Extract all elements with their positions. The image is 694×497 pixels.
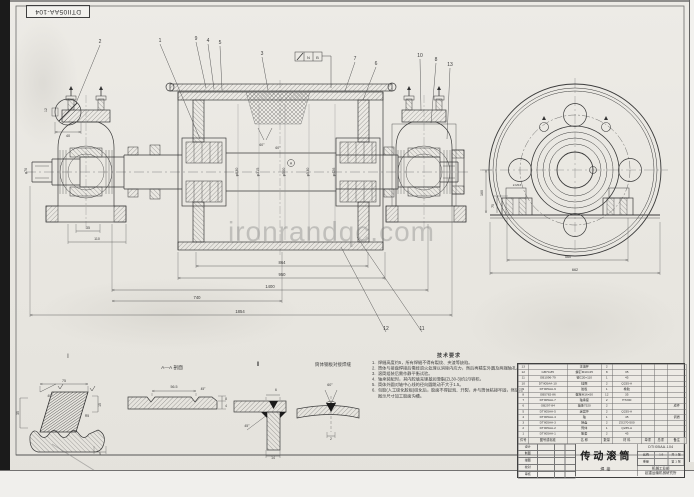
end-view xyxy=(482,78,668,256)
dimension-label: 60° xyxy=(327,383,333,387)
detail-views xyxy=(30,384,359,452)
balloon-leader xyxy=(196,42,206,88)
signature-cell xyxy=(537,471,554,478)
dimension-label: φ315 xyxy=(256,168,260,177)
info-cell: 比例 xyxy=(638,451,655,458)
view-label: 筒体钢板对接焊缝 xyxy=(315,361,351,368)
dimension-label: N xyxy=(307,55,310,60)
signature-cell xyxy=(555,465,565,472)
dimension-label: 35 xyxy=(16,411,20,415)
balloon-leader xyxy=(420,59,421,111)
signature-cell xyxy=(555,458,565,465)
dimension-label: 8 xyxy=(225,397,227,401)
balloon-number: 3 xyxy=(261,51,264,57)
balloon-leader xyxy=(76,45,100,103)
balloon-leader xyxy=(341,247,386,332)
dimension-label: φ70 xyxy=(24,168,28,174)
signature-grid: 设计制图描图校对审核 xyxy=(518,444,576,476)
dimension-label: 60° xyxy=(275,146,281,150)
drawing-number-stamp: DTII05AA-104 xyxy=(26,5,90,18)
dimension-label: 14 xyxy=(271,456,275,460)
balloon-leader xyxy=(447,68,450,139)
balloon-number: 2 xyxy=(99,39,102,45)
dimension-label: 864 xyxy=(279,260,287,265)
dimension-label: 950 xyxy=(279,272,287,277)
notes-list: 1.焊缝高度约5，所有焊缝不得有裂纹、夹渣等缺陷。2.筒体与接盘焊接后需经退火处… xyxy=(372,360,526,399)
dimension-label: B xyxy=(316,55,319,60)
dimension-label: 40° xyxy=(47,394,53,398)
dimension-label: 5 xyxy=(99,452,101,456)
dimension-label: 560 xyxy=(565,255,571,259)
signature-cell: 校对 xyxy=(518,465,537,472)
dimension-label: 740 xyxy=(194,295,202,300)
scan-border-left xyxy=(0,0,10,471)
balloon-number: 12 xyxy=(383,326,389,332)
dimension-label: 60° xyxy=(259,143,265,147)
scanned-drawing-sheet: 86495014007401854351104012φ70φ630φ315φ50… xyxy=(0,0,694,497)
drawing-number: DTII05AA-104 xyxy=(638,444,684,452)
info-cell: 共 1 张 xyxy=(668,451,684,458)
dimension-label: 45° xyxy=(244,424,250,428)
balloon-number: 5 xyxy=(219,40,222,46)
dimension-label: 1400 xyxy=(265,284,275,289)
balloon-number: 7 xyxy=(354,56,357,62)
signature-cell xyxy=(565,465,575,472)
balloon-number: 8 xyxy=(435,57,438,63)
signature-cell: 审核 xyxy=(518,471,537,478)
drawing-subtitle: 焊接 xyxy=(600,466,612,472)
balloon-number: 6 xyxy=(375,61,378,67)
signature-cell xyxy=(565,458,575,465)
bom-head: 件号图号或标准名 称数量材 料单重总重备注 xyxy=(518,437,686,444)
signature-cell xyxy=(537,451,554,458)
dimension-label: 75 xyxy=(491,204,495,208)
dimension-label: 40 xyxy=(66,134,70,138)
dimension-label: 2-M16 xyxy=(513,183,522,187)
dimension-label: 56.5 xyxy=(171,385,178,389)
signature-cell: 描图 xyxy=(518,458,537,465)
info-grid: 比例1:5共 1 张重量第 1 张 xyxy=(638,451,684,466)
weld-flag xyxy=(295,52,331,88)
dimension-label: 4 xyxy=(225,404,227,408)
dimension-label: φ426 xyxy=(332,168,336,177)
drawing-title: 传动滚筒 xyxy=(580,448,632,463)
balloon-number: 11 xyxy=(419,326,424,332)
signature-cell xyxy=(537,458,554,465)
signature-cell xyxy=(555,451,565,458)
scan-border-right xyxy=(689,0,694,462)
dimension-label: 15 xyxy=(98,403,102,407)
balloon-number: 4 xyxy=(207,38,210,44)
info-cell: 第 1 张 xyxy=(668,458,684,465)
view-label: I xyxy=(67,354,69,360)
signature-cell xyxy=(565,471,575,478)
dimension-label: 662 xyxy=(572,268,578,272)
signature-cell xyxy=(565,451,575,458)
dimension-label: 110 xyxy=(94,237,100,241)
dimension-label: 35 xyxy=(86,226,90,230)
title-block: 13注油杯212GB70-85螺钉M10×2583511GB1096-79键C2… xyxy=(517,363,685,478)
signature-cell xyxy=(555,471,565,478)
signature-cell: 设计 xyxy=(518,444,537,451)
balloon-number: 10 xyxy=(417,53,423,59)
dimension-label: 12 xyxy=(44,108,48,112)
technical-notes: 技术要求 1.焊缝高度约5，所有焊缝不得有裂纹、夹渣等缺陷。2.筒体与接盘焊接后… xyxy=(372,351,526,451)
stamp-text: DTII05AA-104 xyxy=(35,8,81,15)
dimension-label: 75 xyxy=(62,379,66,383)
dimension-label: φ530 xyxy=(306,168,310,177)
company-block: 机械工业部 起重运输机械研究所 xyxy=(638,466,684,476)
signature-cell xyxy=(537,444,554,451)
signature-cell xyxy=(555,444,565,451)
balloon-number: 13 xyxy=(447,62,453,68)
note-item: 6.包胶(人工硫化胶板)硫化后，胶面不得起泡、开裂，并与筒体粘接牢固，然后按图示… xyxy=(372,388,526,399)
dimension-label: 160 xyxy=(480,190,484,196)
dimension-label: 1854 xyxy=(235,309,245,314)
dimension-label: φ500 xyxy=(282,168,286,177)
balloon-leader xyxy=(357,237,422,332)
dimension-label: 45° xyxy=(201,387,207,391)
bom-table: 13注油杯212GB70-85螺钉M10×2583511GB1096-79键C2… xyxy=(518,364,687,444)
notes-title: 技术要求 xyxy=(372,351,526,359)
info-cell xyxy=(654,458,668,465)
dimension-label: A xyxy=(290,162,293,166)
info-cell: 1:5 xyxy=(654,451,668,458)
signature-cell: 制图 xyxy=(518,451,537,458)
info-cell: 重量 xyxy=(638,458,655,465)
company-line2: 起重运输机械研究所 xyxy=(638,471,684,476)
main-section-view xyxy=(26,52,468,255)
dimension-label: 2 xyxy=(330,437,332,441)
scan-border-top xyxy=(10,0,694,2)
dimension-label: φ630 xyxy=(235,168,239,177)
title-area: 传动滚筒 焊接 xyxy=(576,444,638,476)
balloon-leader xyxy=(208,44,214,89)
balloon-leader xyxy=(160,44,200,139)
view-label: Ⅱ xyxy=(257,362,260,368)
balloon-number: 9 xyxy=(195,36,198,42)
balloon-number: 1 xyxy=(159,38,162,44)
signature-cell xyxy=(537,465,554,472)
balloon-leader xyxy=(220,46,222,90)
signature-cell xyxy=(565,444,575,451)
view-label: A—A 剖面 xyxy=(161,364,183,371)
dimension-label: 6 xyxy=(275,388,277,392)
dimension-label: R5 xyxy=(85,414,89,418)
